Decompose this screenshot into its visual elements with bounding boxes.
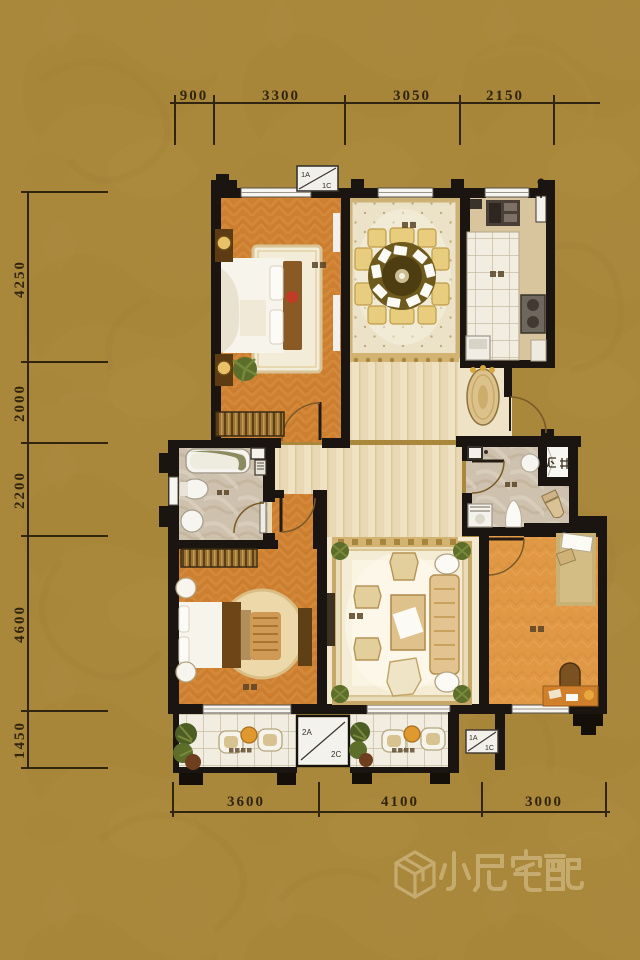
svg-text:3600: 3600 — [227, 794, 265, 810]
svg-text:900: 900 — [180, 88, 209, 104]
svg-text:4250: 4250 — [12, 260, 28, 298]
svg-text:1450: 1450 — [12, 721, 28, 759]
svg-text:2150: 2150 — [486, 88, 524, 104]
svg-text:3050: 3050 — [393, 88, 431, 104]
svg-text:4100: 4100 — [381, 794, 419, 810]
svg-text:3000: 3000 — [525, 794, 563, 810]
svg-text:2200: 2200 — [12, 471, 28, 509]
svg-text:4600: 4600 — [12, 605, 28, 643]
svg-text:2000: 2000 — [12, 384, 28, 422]
svg-text:1C: 1C — [322, 181, 332, 190]
svg-text:2C: 2C — [331, 750, 341, 759]
svg-text:3300: 3300 — [262, 88, 300, 104]
svg-text:1A: 1A — [469, 735, 478, 742]
svg-text:1C: 1C — [485, 745, 494, 752]
svg-text:1A: 1A — [301, 170, 310, 179]
svg-text:2A: 2A — [302, 728, 312, 737]
